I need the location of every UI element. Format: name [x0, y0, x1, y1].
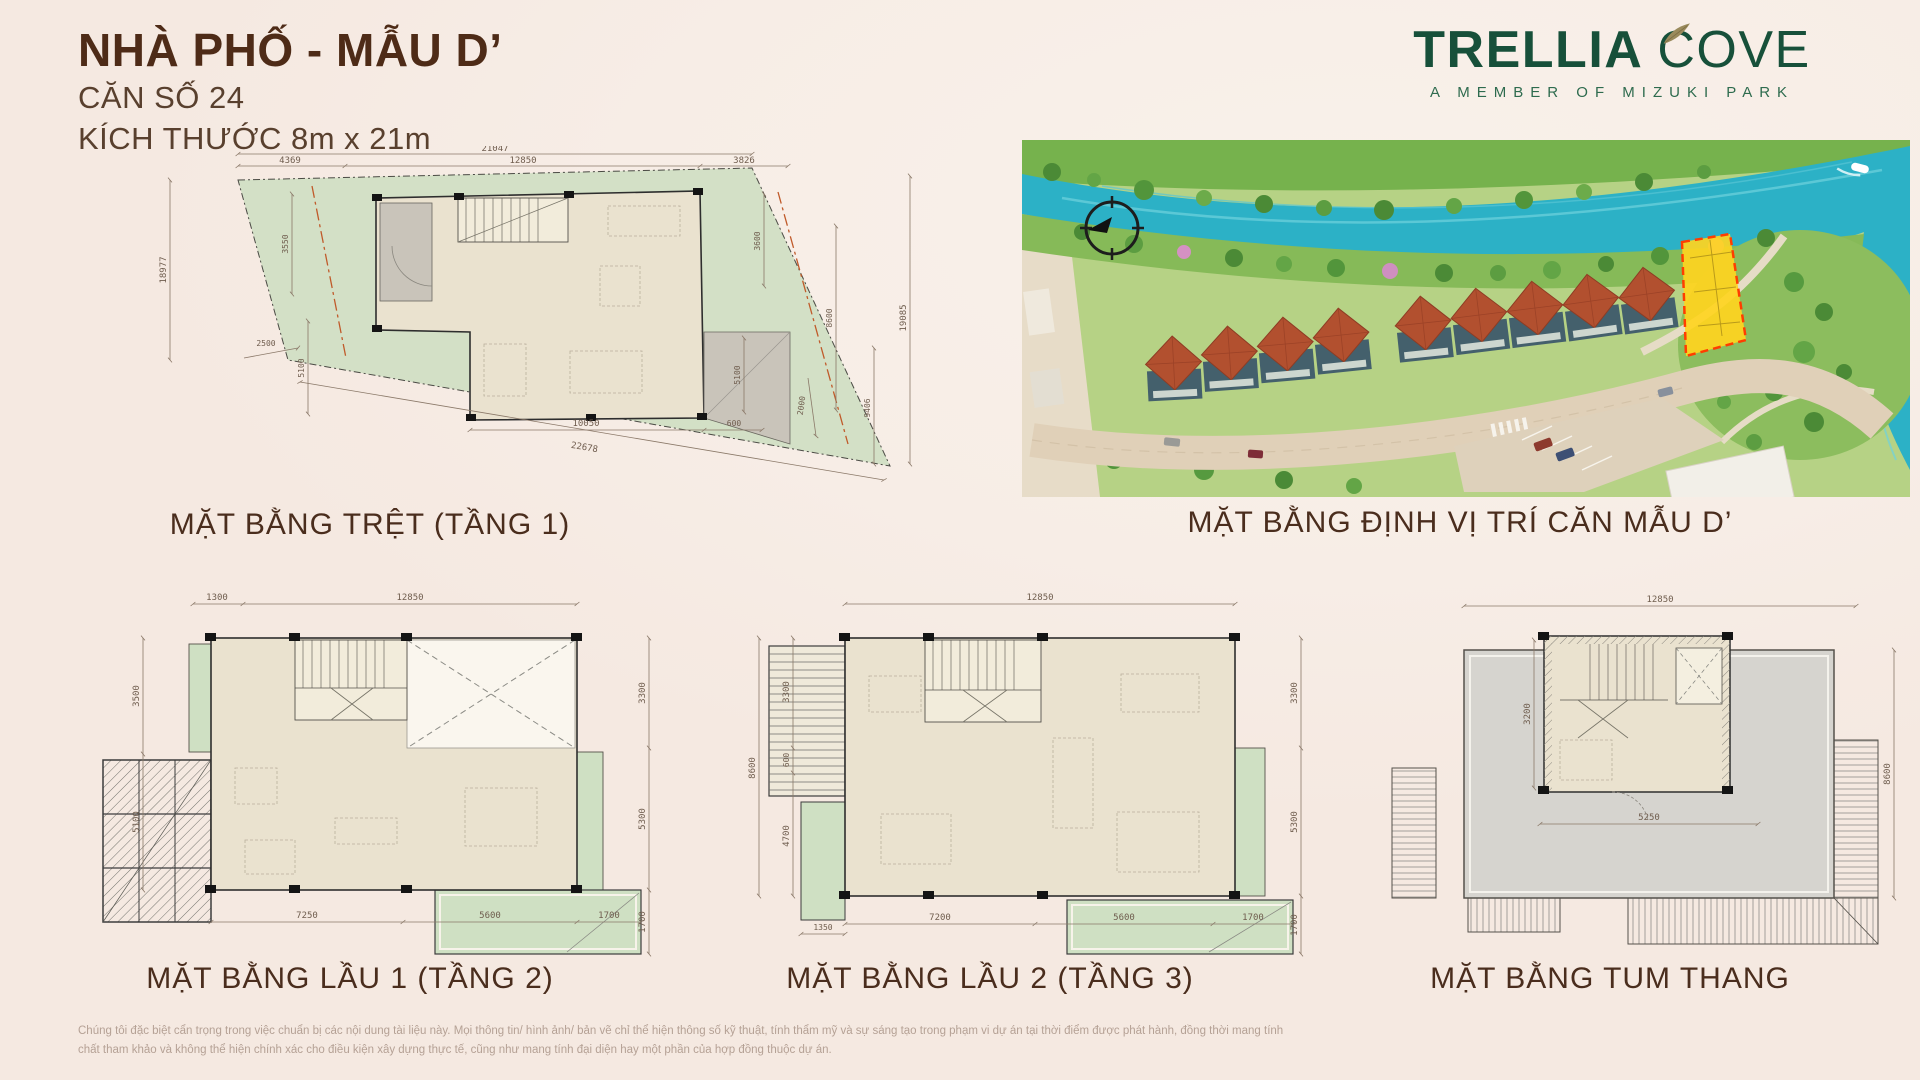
dim: 7200	[929, 913, 951, 923]
dim: 3300	[638, 682, 648, 704]
title-block: NHÀ PHỐ - MẪU D’ CĂN SỐ 24 KÍCH THƯỚC 8m…	[78, 24, 503, 158]
dim: 5100	[132, 811, 142, 833]
louver-screen	[769, 646, 845, 796]
disclaimer-line1: Chúng tôi đặc biệt cẩn trọng trong việc …	[78, 1022, 1283, 1041]
dim: 22678	[570, 441, 598, 455]
dim: 1700	[1290, 914, 1300, 936]
dim: 12850	[1646, 595, 1673, 605]
brand-name-bold: TRELLIA	[1413, 21, 1643, 79]
dim: 3550	[281, 234, 290, 253]
dim: 8600	[1883, 763, 1893, 785]
dim: 1700	[1242, 913, 1264, 923]
floor2-label: MẶT BẰNG LẦU 2 (TẦNG 3)	[760, 962, 1220, 996]
brand-name: TRELLIACOVE	[1413, 20, 1810, 80]
disclaimer-line2: chất tham khảo và không thể hiện chính x…	[78, 1041, 1283, 1060]
garage	[380, 203, 432, 301]
rear-terrace	[1067, 900, 1293, 954]
dim: 3500	[132, 685, 142, 707]
dim: 600	[727, 419, 742, 428]
dim: 4369	[279, 156, 301, 166]
dim: 5250	[1638, 813, 1660, 823]
staircase	[458, 198, 568, 242]
roof-plan: 12850 3200 8600 5250	[1378, 588, 1920, 960]
dim: 1350	[813, 923, 832, 932]
dim: 10050	[572, 419, 599, 429]
dim: 5600	[479, 911, 501, 921]
balcony	[189, 644, 211, 752]
dim: 3200	[1523, 703, 1533, 725]
deck-strip-right	[1834, 740, 1878, 898]
dim: 3300	[782, 681, 792, 703]
dim: 4700	[782, 825, 792, 847]
location-label: MẶT BẰNG ĐỊNH VỊ TRÍ CĂN MẪU D’	[1150, 506, 1770, 540]
deck-strip-bottom	[1628, 898, 1878, 944]
dim: 1300	[206, 593, 228, 603]
dim: 9406	[863, 398, 872, 417]
car	[1248, 450, 1264, 459]
dim: 5100	[297, 358, 306, 377]
dim: 600	[782, 753, 791, 768]
side-terrace	[577, 752, 603, 890]
dim: 5300	[638, 808, 648, 830]
dim: 3300	[1290, 682, 1300, 704]
brochure-page: NHÀ PHỐ - MẪU D’ CĂN SỐ 24 KÍCH THƯỚC 8m…	[0, 0, 1920, 1080]
dim: 12850	[509, 156, 536, 166]
trellis-pergola	[103, 760, 211, 922]
dim: 1700	[638, 911, 648, 933]
floor2-plan: 12850 8600 3300 600 4700 1350 3300 5300 …	[735, 588, 1310, 960]
stair-room	[1544, 636, 1730, 820]
dim: 1700	[598, 911, 620, 921]
deck-strip-bottom-left	[1468, 898, 1560, 932]
disclaimer: Chúng tôi đặc biệt cẩn trọng trong việc …	[78, 1022, 1283, 1060]
dim: 3826	[733, 156, 755, 166]
dim: 5100	[733, 365, 742, 384]
dim: 7250	[296, 911, 318, 921]
dim: 12850	[1026, 593, 1053, 603]
ground-floor-label: MẶT BẰNG TRỆT (TẦNG 1)	[150, 508, 590, 542]
car	[1164, 437, 1181, 447]
dim: 5300	[1290, 811, 1300, 833]
dim: 21047	[481, 146, 508, 154]
unit-number: CĂN SỐ 24	[78, 79, 503, 118]
balcony	[801, 802, 845, 920]
page-title: NHÀ PHỐ - MẪU D’	[78, 24, 503, 77]
roof-label: MẶT BẰNG TUM THANG	[1390, 962, 1830, 996]
dim: 12850	[396, 593, 423, 603]
floor1-plan: 1300 12850 3500 5100 3300 5300 1700 7250…	[85, 588, 660, 960]
brand-logo: TRELLIACOVE A MEMBER OF MIZUKI PARK	[1362, 20, 1862, 101]
staircase	[295, 640, 407, 720]
dim: 3600	[753, 231, 762, 250]
dim: 8600	[825, 308, 834, 327]
dim: 2500	[256, 339, 275, 348]
dim: 18977	[159, 256, 169, 283]
aerial-site-photo	[1022, 140, 1910, 497]
double-height-void	[407, 640, 575, 748]
side-terrace	[1235, 748, 1265, 896]
dim: 5600	[1113, 913, 1135, 923]
ground-floor-plan: 21047 4369 12850 3826 18977 3550 2500 51…	[140, 146, 930, 502]
staircase	[925, 640, 1041, 722]
dim: 19085	[899, 304, 909, 331]
floor1-label: MẶT BẰNG LẦU 1 (TẦNG 2)	[120, 962, 580, 996]
brand-tagline: A MEMBER OF MIZUKI PARK	[1362, 84, 1862, 101]
dim: 8600	[748, 757, 758, 779]
deck-strip-left	[1392, 768, 1436, 898]
